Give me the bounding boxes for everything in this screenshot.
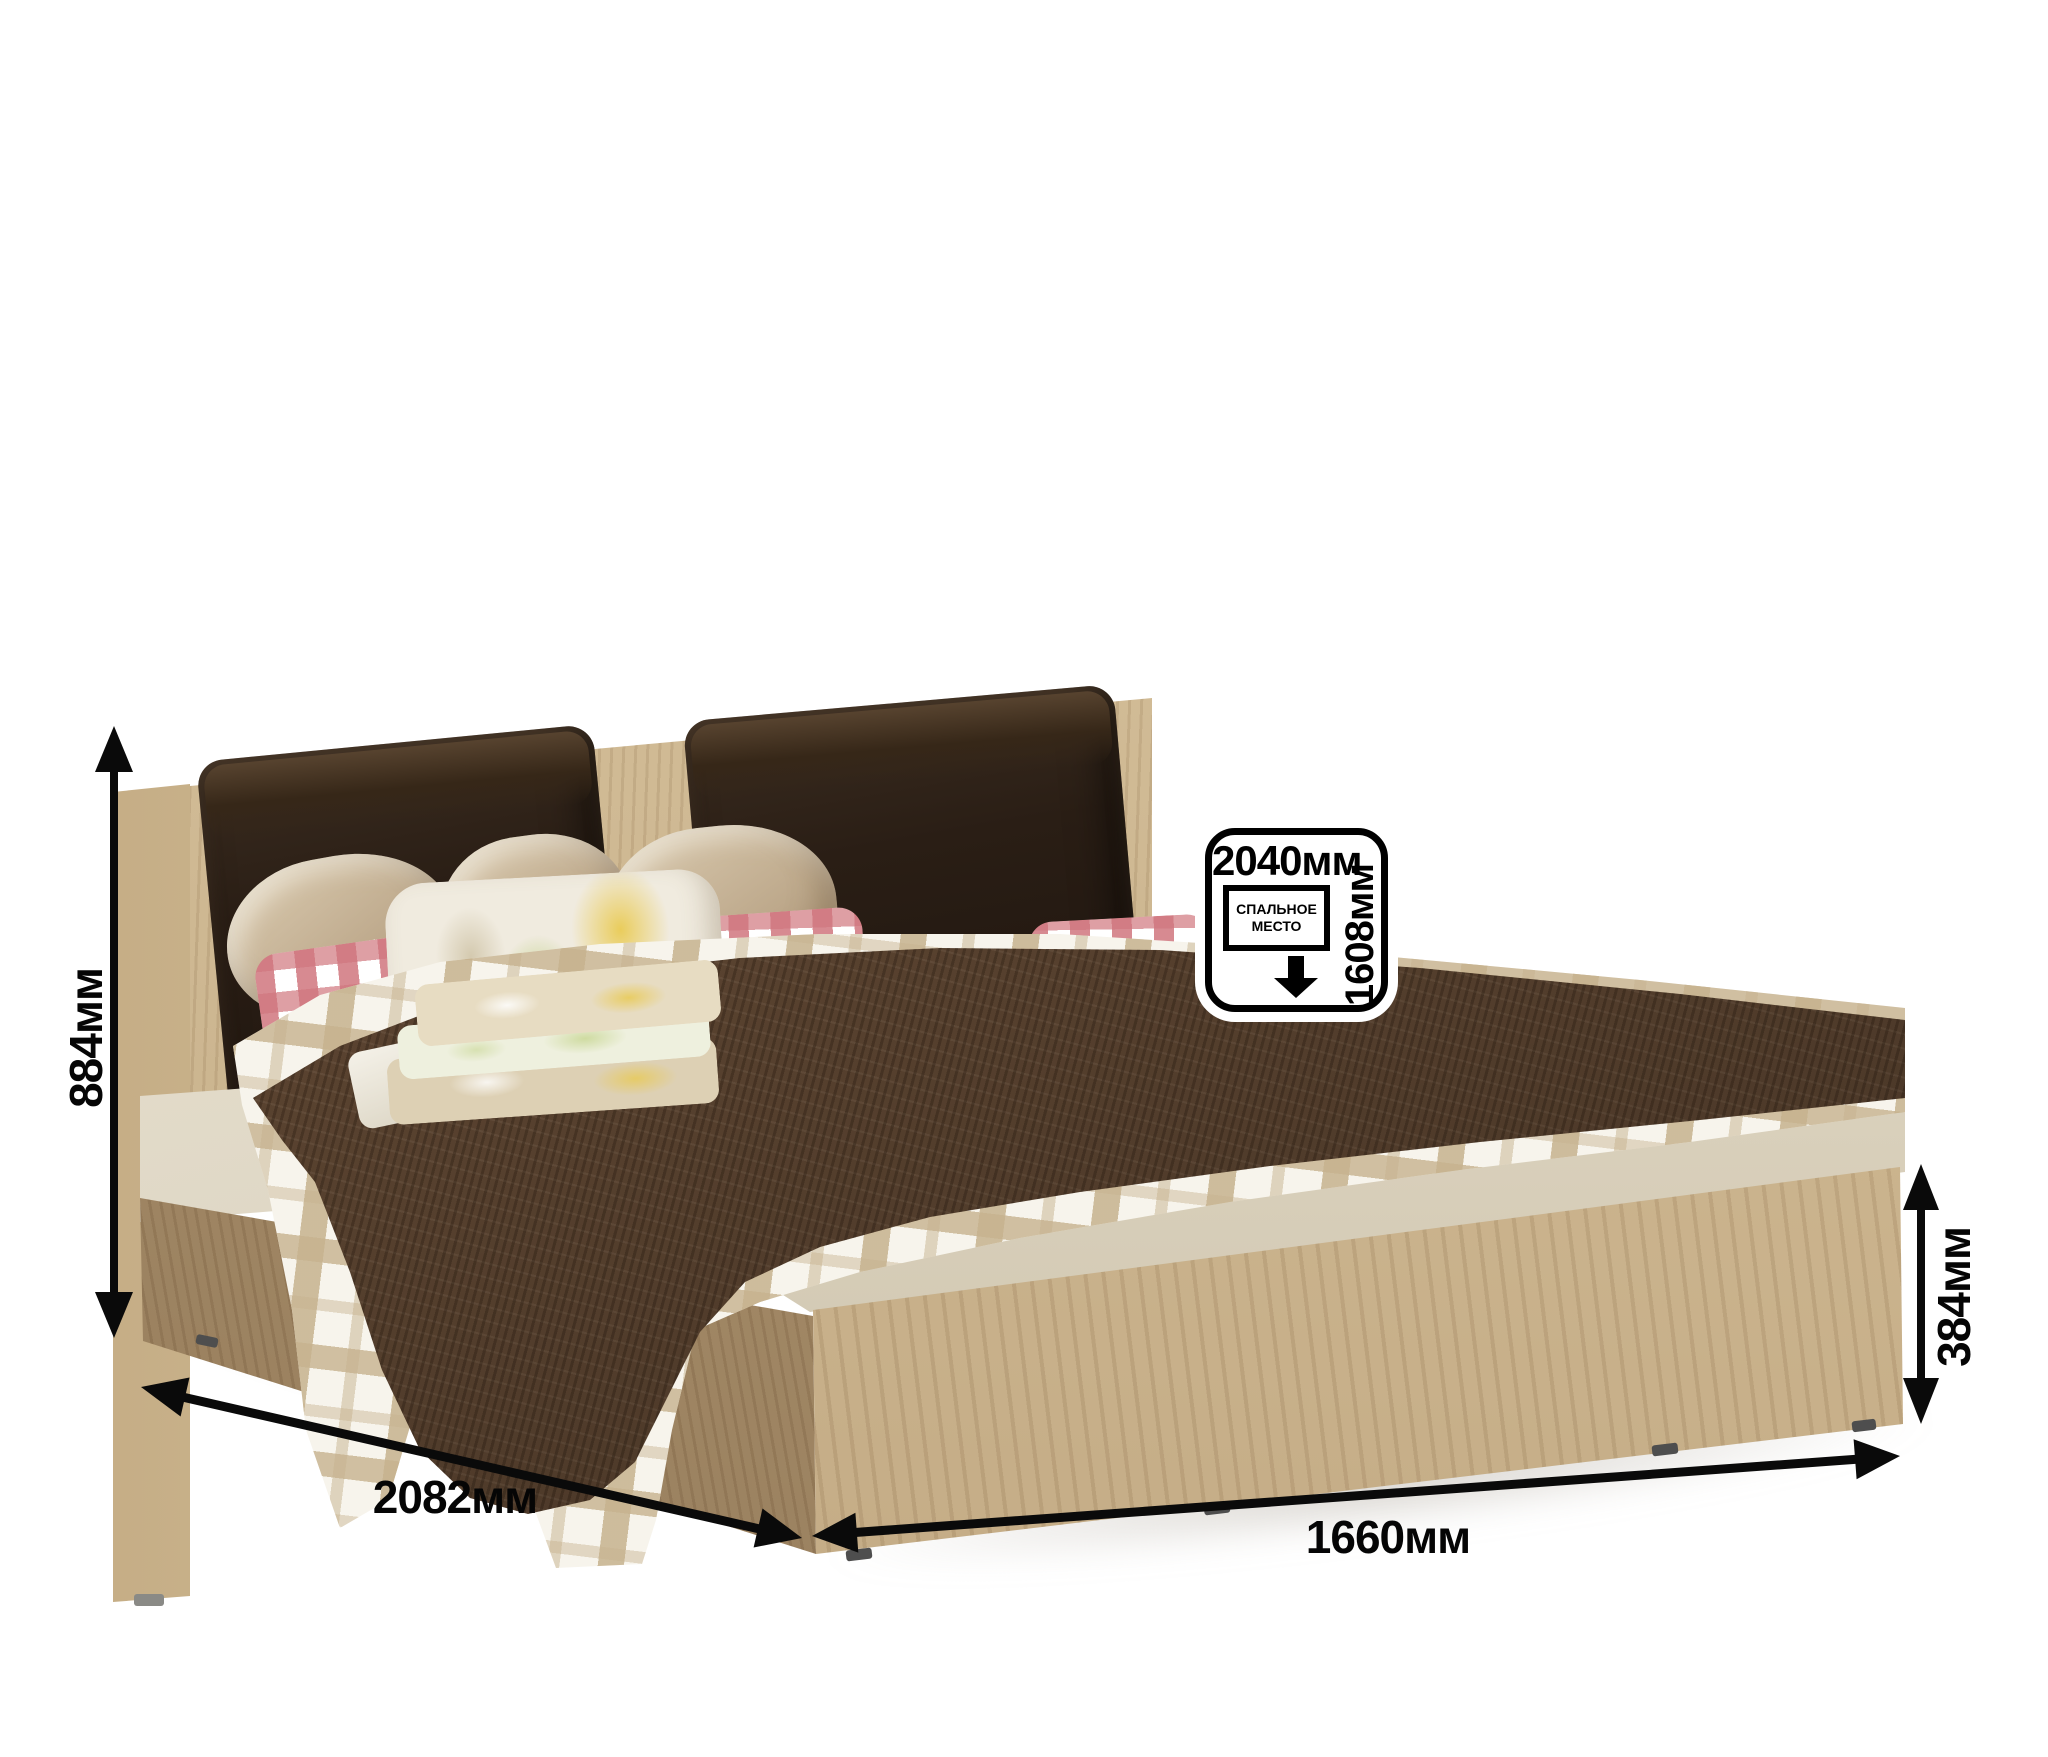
down-arrow-head (1274, 978, 1318, 998)
badge-area-label: СПАЛЬНОЕ МЕСТО (1229, 901, 1324, 936)
dimension-depth-label: 2082мм (373, 1474, 537, 1520)
down-arrow-shaft (1288, 956, 1304, 978)
dimension-height-label: 884мм (63, 968, 109, 1108)
down-arrow-icon (1274, 956, 1318, 998)
dimension-arrows (0, 0, 2048, 1757)
dimension-base-height-label: 384мм (1931, 1227, 1977, 1367)
dimension-width-label: 1660мм (1306, 1514, 1470, 1560)
sleeping-area-badge: 2040мм СПАЛЬНОЕ МЕСТО 1608мм (1205, 828, 1388, 1012)
product-dimension-diagram: 884мм 2082мм 1660мм 384мм 2040мм СПАЛЬНО… (0, 0, 2048, 1757)
badge-bed-width: 1608мм (1340, 864, 1380, 1006)
badge-bed-length: 2040мм (1212, 840, 1352, 882)
badge-area-box: СПАЛЬНОЕ МЕСТО (1223, 885, 1330, 951)
